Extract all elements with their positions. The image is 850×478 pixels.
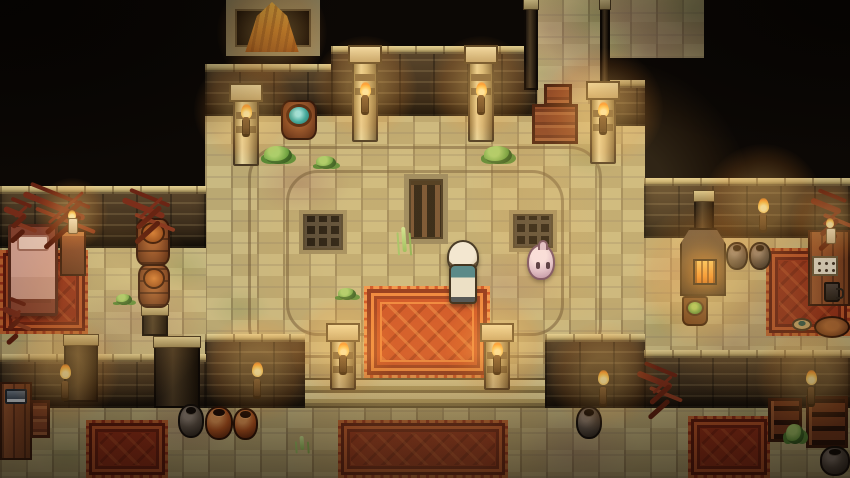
abacus-cards xyxy=(812,256,838,276)
wall-torch-bottom-c xyxy=(596,370,610,404)
pillar-torch-d xyxy=(596,102,610,132)
wall-torch-right-room xyxy=(756,198,770,230)
bush-d xyxy=(338,288,356,300)
wall-top-ledge-right-south xyxy=(644,350,850,358)
pillar-torch-e xyxy=(336,342,350,372)
ghost-npc[interactable] xyxy=(527,244,555,280)
pillar-torch-a xyxy=(239,104,253,134)
furnace[interactable] xyxy=(680,228,726,296)
shelf-plant xyxy=(786,424,804,444)
crate-small[interactable] xyxy=(544,84,572,106)
grass-sprout-bottom xyxy=(293,434,311,450)
pillar-torch-c xyxy=(474,82,488,112)
dead-roots-e xyxy=(632,360,684,418)
bowl xyxy=(792,318,812,331)
nightstand-candle xyxy=(66,210,78,234)
wall-top-ledge-central-south-right xyxy=(545,334,645,342)
bottom-right-carpet xyxy=(688,416,770,478)
book[interactable] xyxy=(5,389,27,404)
wall-torch-bottom-b xyxy=(250,362,264,396)
dead-roots-f xyxy=(0,294,26,344)
floor-grate-left xyxy=(299,210,347,254)
wall-top-ledge-north-left xyxy=(205,64,331,72)
bush-c xyxy=(316,156,336,169)
stool[interactable] xyxy=(30,400,50,438)
game-viewport[interactable] xyxy=(0,0,850,478)
round-side-table xyxy=(814,316,850,338)
bottom-pot-dark-c[interactable] xyxy=(820,446,850,476)
bottom-center-carpet xyxy=(338,420,508,478)
corridor-west-column xyxy=(524,0,538,90)
pillar-torch-f xyxy=(490,342,504,372)
south-wall-buttress-b xyxy=(154,338,200,408)
nightstand[interactable] xyxy=(60,230,86,276)
ceramic-pot-a[interactable] xyxy=(726,242,748,270)
player-character[interactable] xyxy=(444,240,478,306)
table-candle xyxy=(824,218,836,244)
central-south-wall-right xyxy=(545,340,645,408)
grass-sprout-center xyxy=(396,224,412,252)
wall-top-ledge-central-south-left xyxy=(205,334,305,342)
wall-torch-bottom-d xyxy=(804,370,818,404)
dead-roots-c xyxy=(0,200,34,234)
barrel-pedestal xyxy=(142,306,168,336)
stacked-barrel-bottom[interactable] xyxy=(138,264,170,308)
bush-a xyxy=(264,146,292,164)
crate-large[interactable] xyxy=(532,104,578,144)
ceramic-pot-b[interactable] xyxy=(749,242,771,270)
bottom-pot-orange-a[interactable] xyxy=(205,406,233,440)
corridor-east-column xyxy=(600,0,610,88)
wall-torch-bottom-a xyxy=(58,364,72,398)
bottom-pot-dark-b[interactable] xyxy=(576,406,602,439)
mug[interactable] xyxy=(824,282,840,302)
dead-roots-b xyxy=(116,194,178,232)
bush-b xyxy=(484,146,512,164)
bottom-pot-orange-b[interactable] xyxy=(233,408,258,440)
bottom-left-carpet xyxy=(86,420,168,478)
bush-e xyxy=(116,294,132,305)
top-far-right-floor xyxy=(604,0,704,58)
water-barrel[interactable] xyxy=(281,100,317,140)
bottom-pot-dark-a[interactable] xyxy=(178,404,204,438)
pillar-torch-b xyxy=(358,82,372,112)
green-water-bucket[interactable] xyxy=(682,296,708,326)
